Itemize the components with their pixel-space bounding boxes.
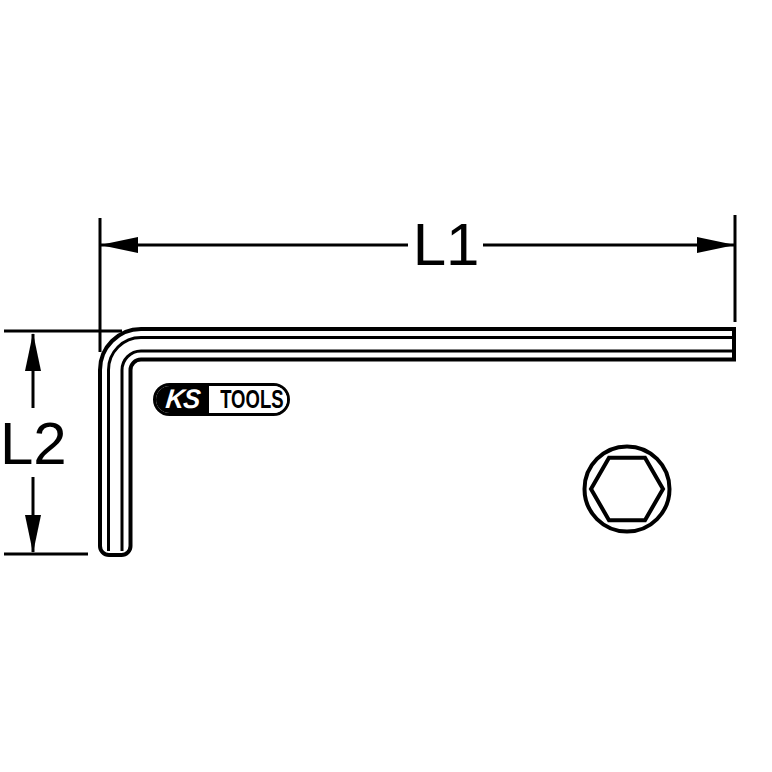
l1-arrowhead-right-icon — [697, 237, 735, 253]
l2-arrowhead-up-icon — [25, 333, 41, 371]
ks-tools-logo: KS TOOLS ® — [153, 383, 290, 416]
ks-tools-logo-black-section: KS — [156, 386, 209, 413]
logo-ks-text: KS — [164, 386, 201, 413]
cross-section-hexagon-icon — [591, 458, 663, 520]
l1-dimension-label: L1 — [406, 214, 486, 276]
l2-dimension-label: L2 — [0, 413, 66, 475]
hex-key-drawing-canvas — [0, 0, 772, 772]
hex-cross-section — [585, 447, 670, 532]
l1-arrowhead-left-icon — [100, 237, 138, 253]
l2-arrowhead-down-icon — [25, 515, 41, 553]
product-technical-drawing: L1 L2 KS TOOLS ® — [0, 0, 772, 772]
ks-tools-logo-white-section: TOOLS ® — [209, 386, 290, 413]
logo-tools-text: TOOLS — [220, 387, 283, 412]
